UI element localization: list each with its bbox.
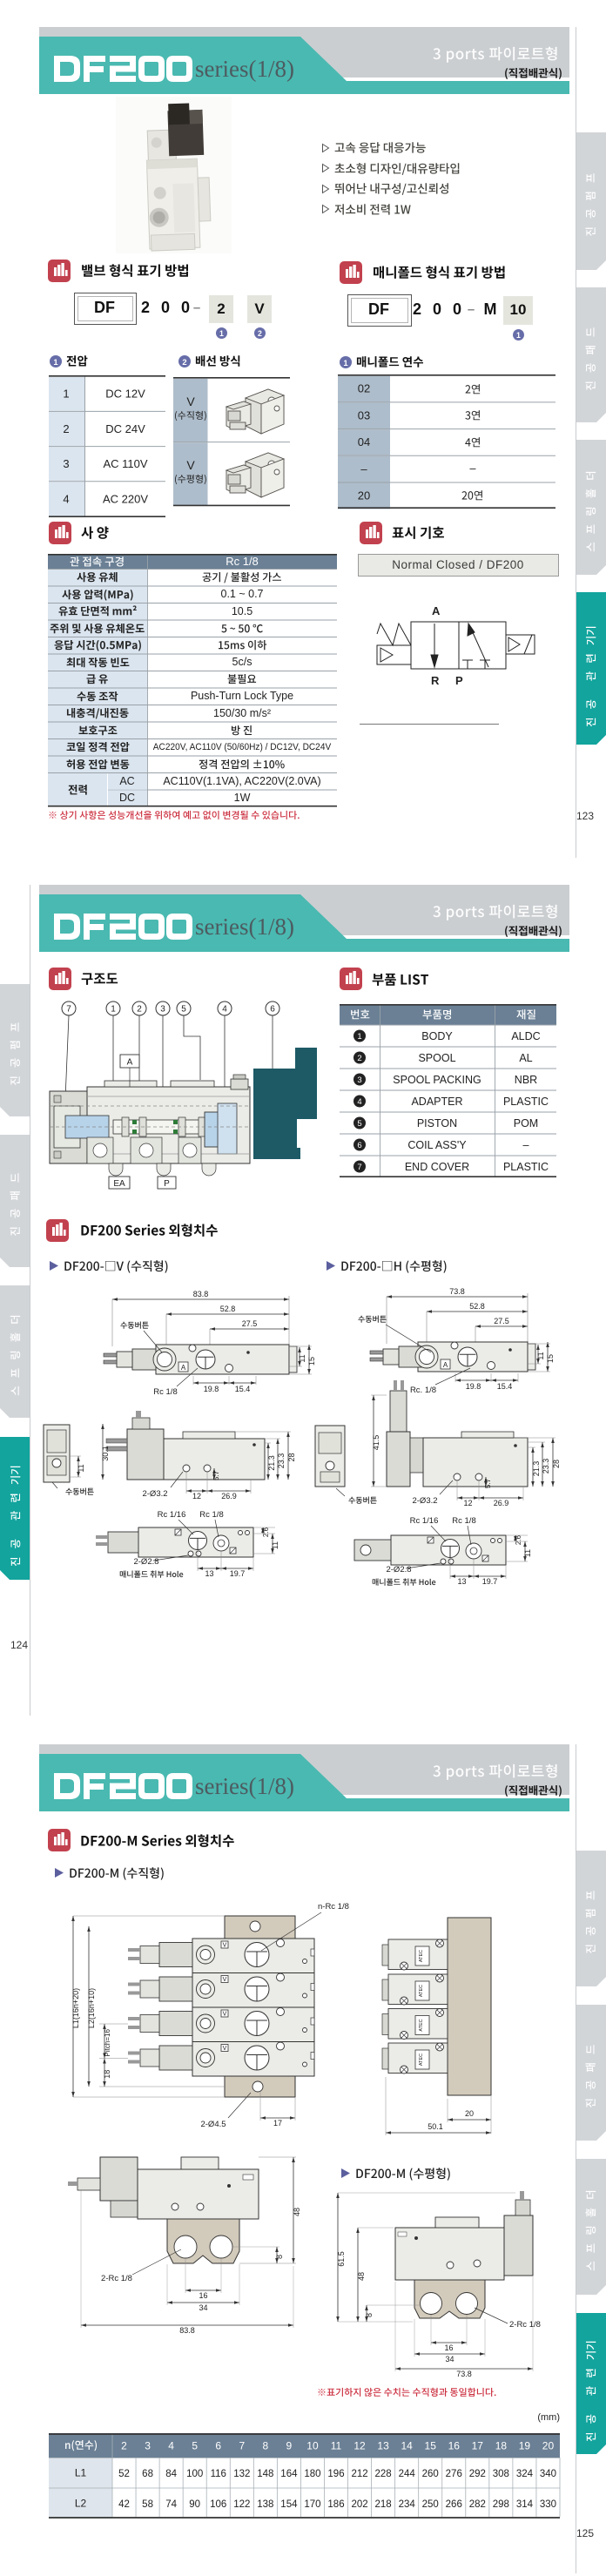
svg-text:3: 3: [357, 1076, 361, 1085]
svg-text:23.3: 23.3: [277, 1453, 286, 1469]
svg-text:260: 260: [422, 2469, 439, 2479]
svg-text:2: 2: [137, 1005, 142, 1015]
svg-text:28: 28: [287, 1453, 296, 1461]
svg-text:52: 52: [118, 2469, 130, 2479]
svg-text:52.8: 52.8: [469, 1302, 485, 1311]
svg-text:1: 1: [63, 388, 69, 401]
svg-text:15.4: 15.4: [235, 1385, 251, 1393]
svg-text:3: 3: [63, 457, 69, 470]
svg-text:NBR: NBR: [515, 1074, 537, 1086]
svg-text:8: 8: [262, 2440, 268, 2452]
svg-text:13: 13: [377, 2440, 389, 2452]
svg-text:196: 196: [327, 2469, 344, 2479]
svg-text:41.5: 41.5: [372, 1435, 380, 1451]
svg-text:23.3: 23.3: [542, 1459, 550, 1474]
svg-text:11: 11: [77, 1464, 85, 1472]
svg-text:L1: L1: [75, 2467, 87, 2479]
svg-text:12: 12: [463, 1499, 472, 1507]
svg-text:V: V: [223, 1977, 227, 1983]
svg-text:7: 7: [239, 2440, 245, 2452]
svg-text:A: A: [127, 1058, 133, 1068]
svg-text:8: 8: [365, 2313, 374, 2317]
svg-text:PLASTIC: PLASTIC: [503, 1096, 549, 1108]
svg-text:73.8: 73.8: [456, 2370, 472, 2378]
svg-text:266: 266: [446, 2499, 462, 2510]
svg-text:11: 11: [536, 1352, 545, 1359]
svg-text:26.9: 26.9: [494, 1499, 509, 1507]
svg-text:1: 1: [219, 329, 224, 338]
svg-text:52.8: 52.8: [220, 1305, 236, 1313]
svg-text:21.3: 21.3: [532, 1461, 541, 1477]
svg-text:Pitch=16: Pitch=16: [104, 2029, 111, 2057]
svg-text:4: 4: [168, 2440, 174, 2452]
svg-text:5.7: 5.7: [212, 1470, 220, 1480]
svg-text:AC 220V: AC 220V: [103, 492, 148, 505]
svg-text:74: 74: [165, 2499, 177, 2510]
svg-text:18: 18: [495, 2440, 508, 2452]
svg-text:298: 298: [493, 2499, 509, 2510]
svg-text:27.5: 27.5: [494, 1317, 509, 1325]
svg-text:1: 1: [343, 359, 347, 368]
svg-text:11: 11: [331, 2440, 342, 2452]
svg-text:10: 10: [306, 2440, 319, 2452]
svg-text:END COVER: END COVER: [405, 1161, 469, 1173]
svg-text:15: 15: [425, 2440, 437, 2452]
svg-text:3: 3: [145, 2440, 151, 2452]
svg-text:50.1: 50.1: [428, 2122, 443, 2131]
svg-text:180: 180: [304, 2469, 320, 2479]
svg-text:20: 20: [358, 489, 370, 502]
svg-text:DC 24V: DC 24V: [105, 422, 145, 435]
svg-text:16: 16: [199, 2291, 207, 2300]
svg-text:ATEC: ATEC: [419, 1950, 424, 1962]
svg-text:13: 13: [205, 1569, 213, 1578]
svg-text:5: 5: [181, 1005, 186, 1015]
svg-text:8: 8: [275, 2255, 284, 2259]
svg-text:18: 18: [103, 2070, 111, 2079]
svg-text:15: 15: [307, 1357, 316, 1366]
svg-text:9: 9: [286, 2440, 293, 2452]
svg-text:164: 164: [280, 2469, 298, 2479]
svg-text:6: 6: [357, 1141, 361, 1150]
svg-text:308: 308: [493, 2469, 509, 2479]
svg-text:7: 7: [357, 1163, 361, 1172]
svg-text:ADAPTER: ADAPTER: [411, 1096, 462, 1108]
svg-text:28: 28: [552, 1460, 561, 1468]
svg-text:–: –: [360, 462, 367, 475]
svg-text:4: 4: [63, 492, 69, 505]
svg-text:SPOOL: SPOOL: [418, 1052, 455, 1064]
svg-text:61.5: 61.5: [337, 2251, 346, 2267]
svg-text:228: 228: [375, 2469, 392, 2479]
svg-text:19.7: 19.7: [230, 1569, 246, 1578]
svg-text:116: 116: [211, 2469, 226, 2479]
svg-text:48: 48: [293, 2208, 301, 2216]
svg-text:58: 58: [142, 2499, 153, 2510]
svg-text:19.7: 19.7: [482, 1577, 498, 1586]
svg-text:EA: EA: [113, 1179, 125, 1189]
svg-text:30.1: 30.1: [101, 1446, 110, 1461]
svg-text:–: –: [523, 1139, 529, 1151]
svg-text:2.6: 2.6: [515, 1534, 522, 1545]
svg-text:1: 1: [111, 1005, 116, 1015]
svg-text:V: V: [223, 2012, 227, 2018]
svg-text:02: 02: [358, 382, 370, 395]
svg-text:6: 6: [270, 1005, 275, 1015]
svg-text:276: 276: [446, 2469, 462, 2479]
svg-text:11: 11: [298, 1354, 306, 1362]
svg-text:AC 110V: AC 110V: [103, 457, 147, 470]
svg-text:2: 2: [121, 2440, 127, 2452]
svg-text:13: 13: [457, 1577, 466, 1586]
svg-text:27.5: 27.5: [242, 1319, 258, 1328]
svg-text:03: 03: [358, 408, 370, 421]
svg-text:15: 15: [546, 1354, 555, 1363]
svg-text:2: 2: [63, 422, 69, 435]
svg-text:1: 1: [357, 1032, 361, 1042]
svg-text:122: 122: [233, 2499, 250, 2510]
svg-text:ATEC: ATEC: [419, 2019, 424, 2031]
svg-text:4: 4: [222, 1005, 227, 1015]
svg-text:L2: L2: [75, 2498, 87, 2510]
svg-text:1: 1: [53, 358, 57, 368]
svg-text:DC 12V: DC 12V: [105, 388, 145, 401]
svg-text:83.8: 83.8: [179, 2326, 195, 2335]
svg-text:L2(16n+10): L2(16n+10): [87, 1988, 96, 2028]
svg-text:6: 6: [215, 2440, 221, 2452]
svg-text:282: 282: [469, 2499, 486, 2510]
svg-text:218: 218: [375, 2499, 392, 2510]
svg-text:21.3: 21.3: [267, 1455, 276, 1471]
svg-text:154: 154: [280, 2499, 298, 2510]
svg-text:90: 90: [189, 2499, 200, 2510]
svg-text:A: A: [432, 604, 441, 617]
svg-text:19: 19: [519, 2440, 531, 2452]
svg-text:AL: AL: [519, 1052, 532, 1064]
svg-text:2: 2: [258, 329, 262, 338]
svg-text:7: 7: [66, 1005, 71, 1015]
svg-text:5: 5: [192, 2440, 198, 2452]
svg-text:324: 324: [516, 2469, 534, 2479]
svg-text:84: 84: [165, 2469, 177, 2479]
svg-text:250: 250: [422, 2499, 439, 2510]
svg-text:26.9: 26.9: [221, 1492, 237, 1500]
svg-text:34: 34: [445, 2355, 454, 2364]
svg-text:16: 16: [448, 2440, 461, 2452]
svg-text:17: 17: [273, 2119, 282, 2128]
svg-text:330: 330: [540, 2499, 556, 2510]
svg-text:100: 100: [186, 2469, 203, 2479]
svg-text:212: 212: [351, 2469, 367, 2479]
svg-text:12: 12: [353, 2440, 366, 2452]
svg-text:106: 106: [210, 2499, 226, 2510]
svg-text:V: V: [223, 2046, 227, 2052]
svg-text:73.8: 73.8: [449, 1287, 465, 1296]
svg-text:ATEC: ATEC: [419, 2053, 424, 2066]
svg-text:48: 48: [357, 2272, 366, 2281]
svg-text:234: 234: [399, 2499, 416, 2510]
svg-text:V: V: [223, 1943, 227, 1949]
svg-text:186: 186: [327, 2499, 344, 2510]
svg-text:138: 138: [257, 2499, 273, 2510]
svg-text:14: 14: [401, 2440, 413, 2452]
svg-text:34: 34: [199, 2303, 207, 2312]
svg-text:11: 11: [523, 1549, 532, 1557]
svg-text:83.8: 83.8: [193, 1290, 209, 1298]
svg-text:244: 244: [399, 2469, 416, 2479]
svg-text:12: 12: [192, 1492, 201, 1500]
svg-text:04: 04: [358, 435, 370, 448]
svg-text:20: 20: [542, 2440, 555, 2452]
svg-text:P: P: [455, 674, 463, 687]
svg-text:2: 2: [182, 358, 186, 368]
svg-text:132: 132: [233, 2469, 250, 2479]
svg-text:16: 16: [444, 2343, 453, 2352]
svg-text:PLASTIC: PLASTIC: [503, 1161, 549, 1173]
svg-text:11: 11: [271, 1541, 279, 1549]
svg-text:L1(16n+20): L1(16n+20): [71, 1988, 80, 2028]
svg-text:314: 314: [516, 2499, 534, 2510]
svg-text:148: 148: [257, 2469, 273, 2479]
svg-text:2: 2: [357, 1054, 361, 1063]
svg-text:20: 20: [465, 2109, 474, 2118]
svg-text:340: 340: [540, 2469, 556, 2479]
svg-text:292: 292: [469, 2469, 486, 2479]
svg-text:ALDC: ALDC: [511, 1030, 540, 1042]
svg-text:202: 202: [351, 2499, 367, 2510]
svg-text:P: P: [164, 1179, 170, 1189]
svg-text:2.6: 2.6: [262, 1527, 270, 1537]
svg-text:170: 170: [304, 2499, 320, 2510]
svg-text:4: 4: [357, 1097, 361, 1107]
svg-text:R: R: [431, 674, 440, 687]
svg-text:5: 5: [357, 1119, 361, 1129]
svg-text:SPOOL PACKING: SPOOL PACKING: [393, 1074, 481, 1086]
svg-text:3: 3: [160, 1005, 165, 1015]
svg-text:ATEC: ATEC: [419, 1985, 424, 1997]
svg-text:1: 1: [516, 331, 521, 340]
svg-text:COIL ASS'Y: COIL ASS'Y: [407, 1139, 467, 1151]
svg-text:68: 68: [142, 2469, 153, 2479]
svg-text:17: 17: [472, 2440, 484, 2452]
svg-text:BODY: BODY: [421, 1030, 453, 1042]
svg-text:PISTON: PISTON: [417, 1117, 457, 1130]
svg-text:POM: POM: [514, 1117, 538, 1130]
svg-text:42: 42: [118, 2499, 130, 2510]
svg-text:5.7: 5.7: [484, 1478, 492, 1488]
